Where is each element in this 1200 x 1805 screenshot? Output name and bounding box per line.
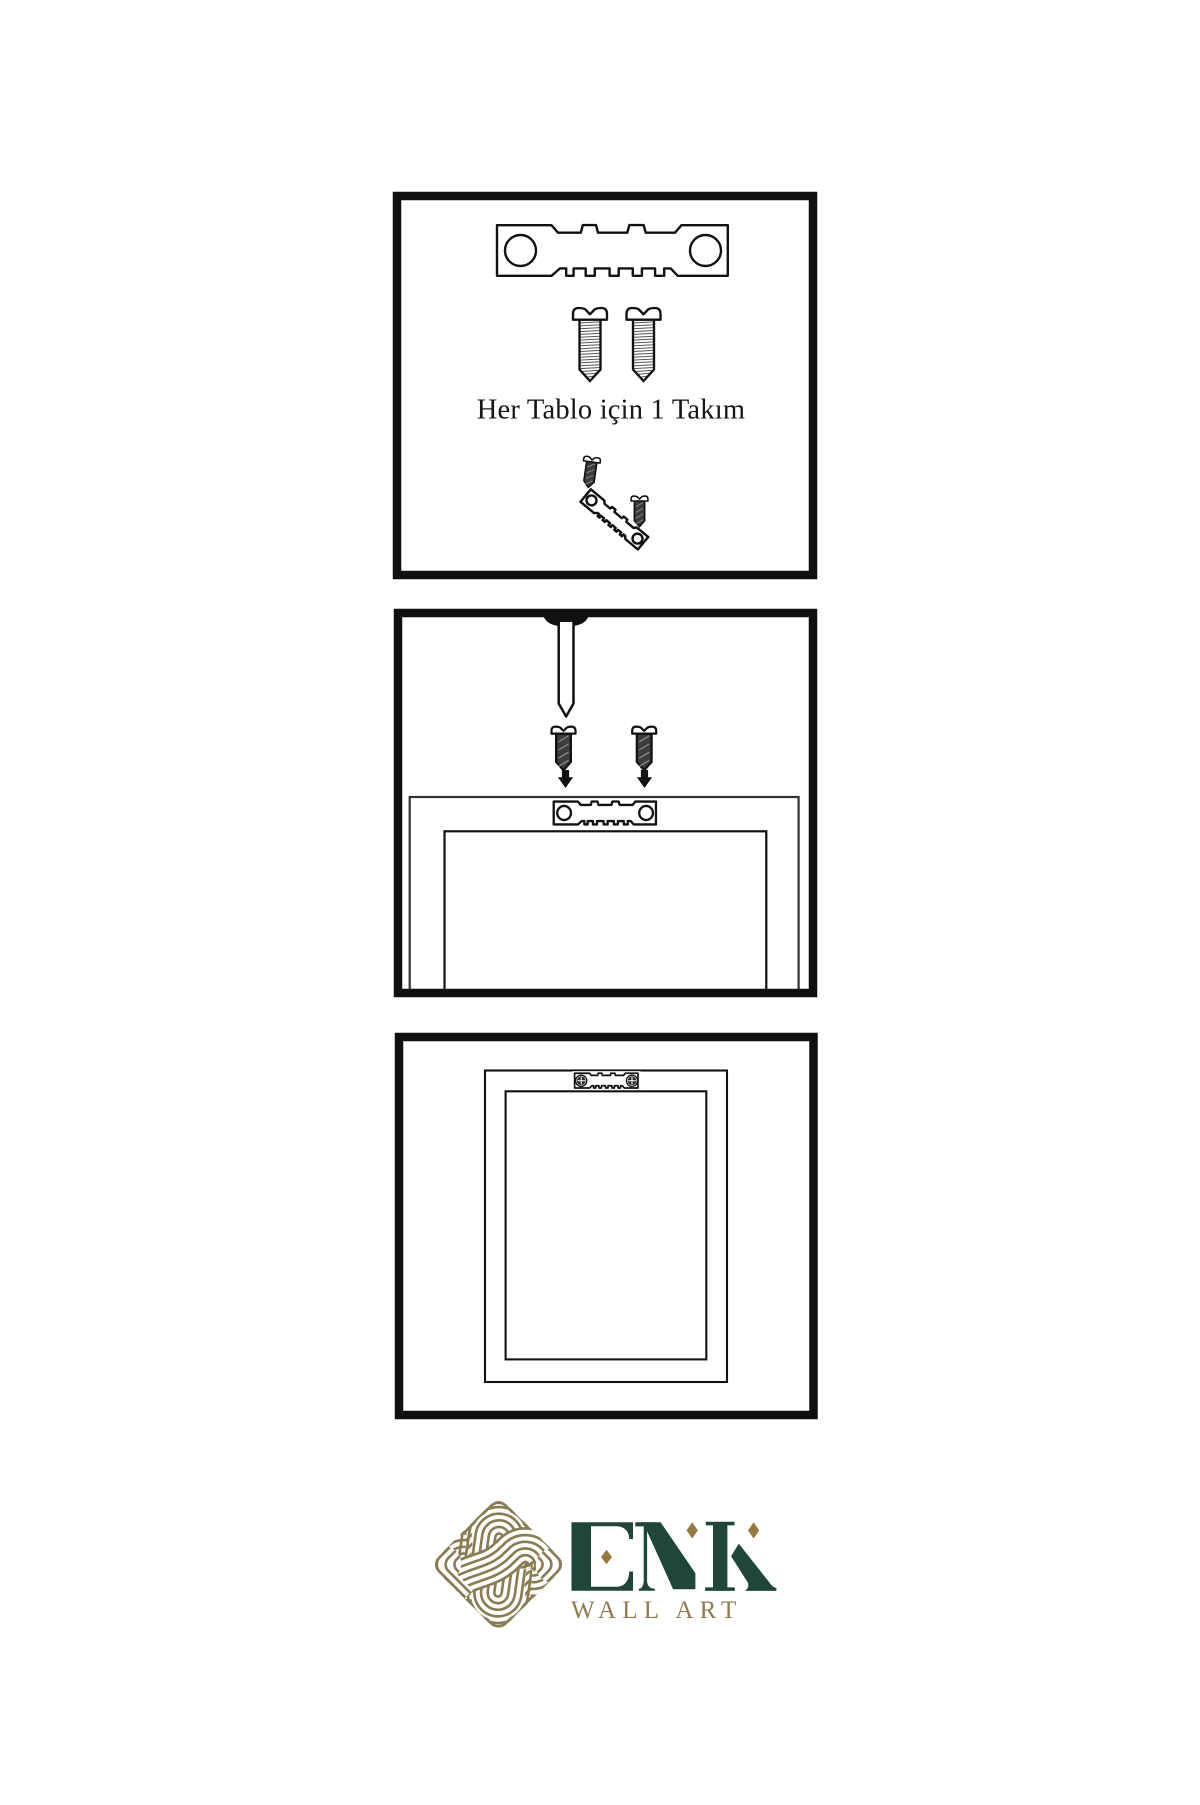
- svg-text:WALL ART: WALL ART: [571, 1597, 742, 1624]
- svg-text:Her Tablo için 1 Takım: Her Tablo için 1 Takım: [477, 395, 745, 426]
